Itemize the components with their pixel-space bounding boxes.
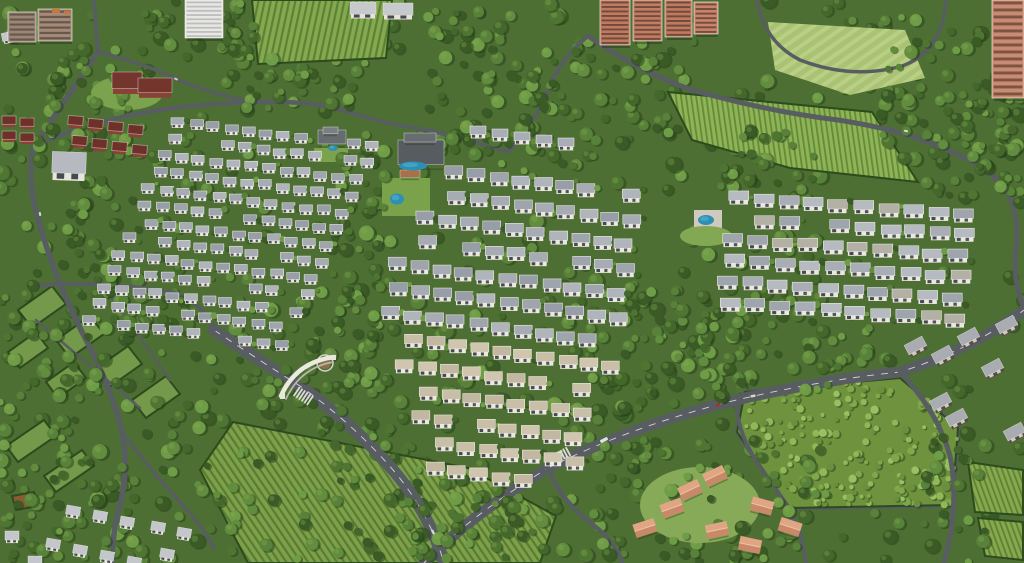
white-villa (28, 556, 42, 563)
red-villa (88, 119, 104, 132)
grey-apartment (383, 3, 413, 20)
white-villa (99, 550, 115, 563)
lawn (382, 178, 430, 216)
red-villa (20, 118, 34, 129)
clubhouse-middle-deck (400, 170, 420, 180)
white-highrise (185, 0, 223, 41)
red-villa (72, 136, 88, 149)
salmon-tower (665, 0, 692, 40)
red-villa (92, 139, 108, 152)
aerial-township-render (0, 0, 1024, 563)
salmon-tower (694, 2, 718, 37)
salmon-tower-right-edge (992, 0, 1024, 101)
red-villa (128, 125, 144, 138)
red-villa (2, 131, 16, 142)
red-villa (108, 122, 124, 135)
white-villa (5, 531, 19, 543)
brick-clubhouse (138, 78, 172, 98)
salmon-tower (600, 0, 630, 48)
apartment-block (38, 9, 72, 44)
clubhouse-left-upper (323, 127, 338, 136)
white-apartment (51, 151, 86, 181)
salmon-tower (633, 0, 662, 44)
aerial-render-canvas (0, 0, 1024, 563)
red-villa (68, 116, 84, 129)
red-villa (112, 142, 128, 155)
red-villa (2, 116, 16, 127)
apartment-block (8, 12, 36, 45)
red-villa (20, 133, 34, 144)
grey-apartment (350, 2, 376, 19)
brick-clubhouse (112, 72, 142, 94)
red-villa (132, 145, 148, 158)
